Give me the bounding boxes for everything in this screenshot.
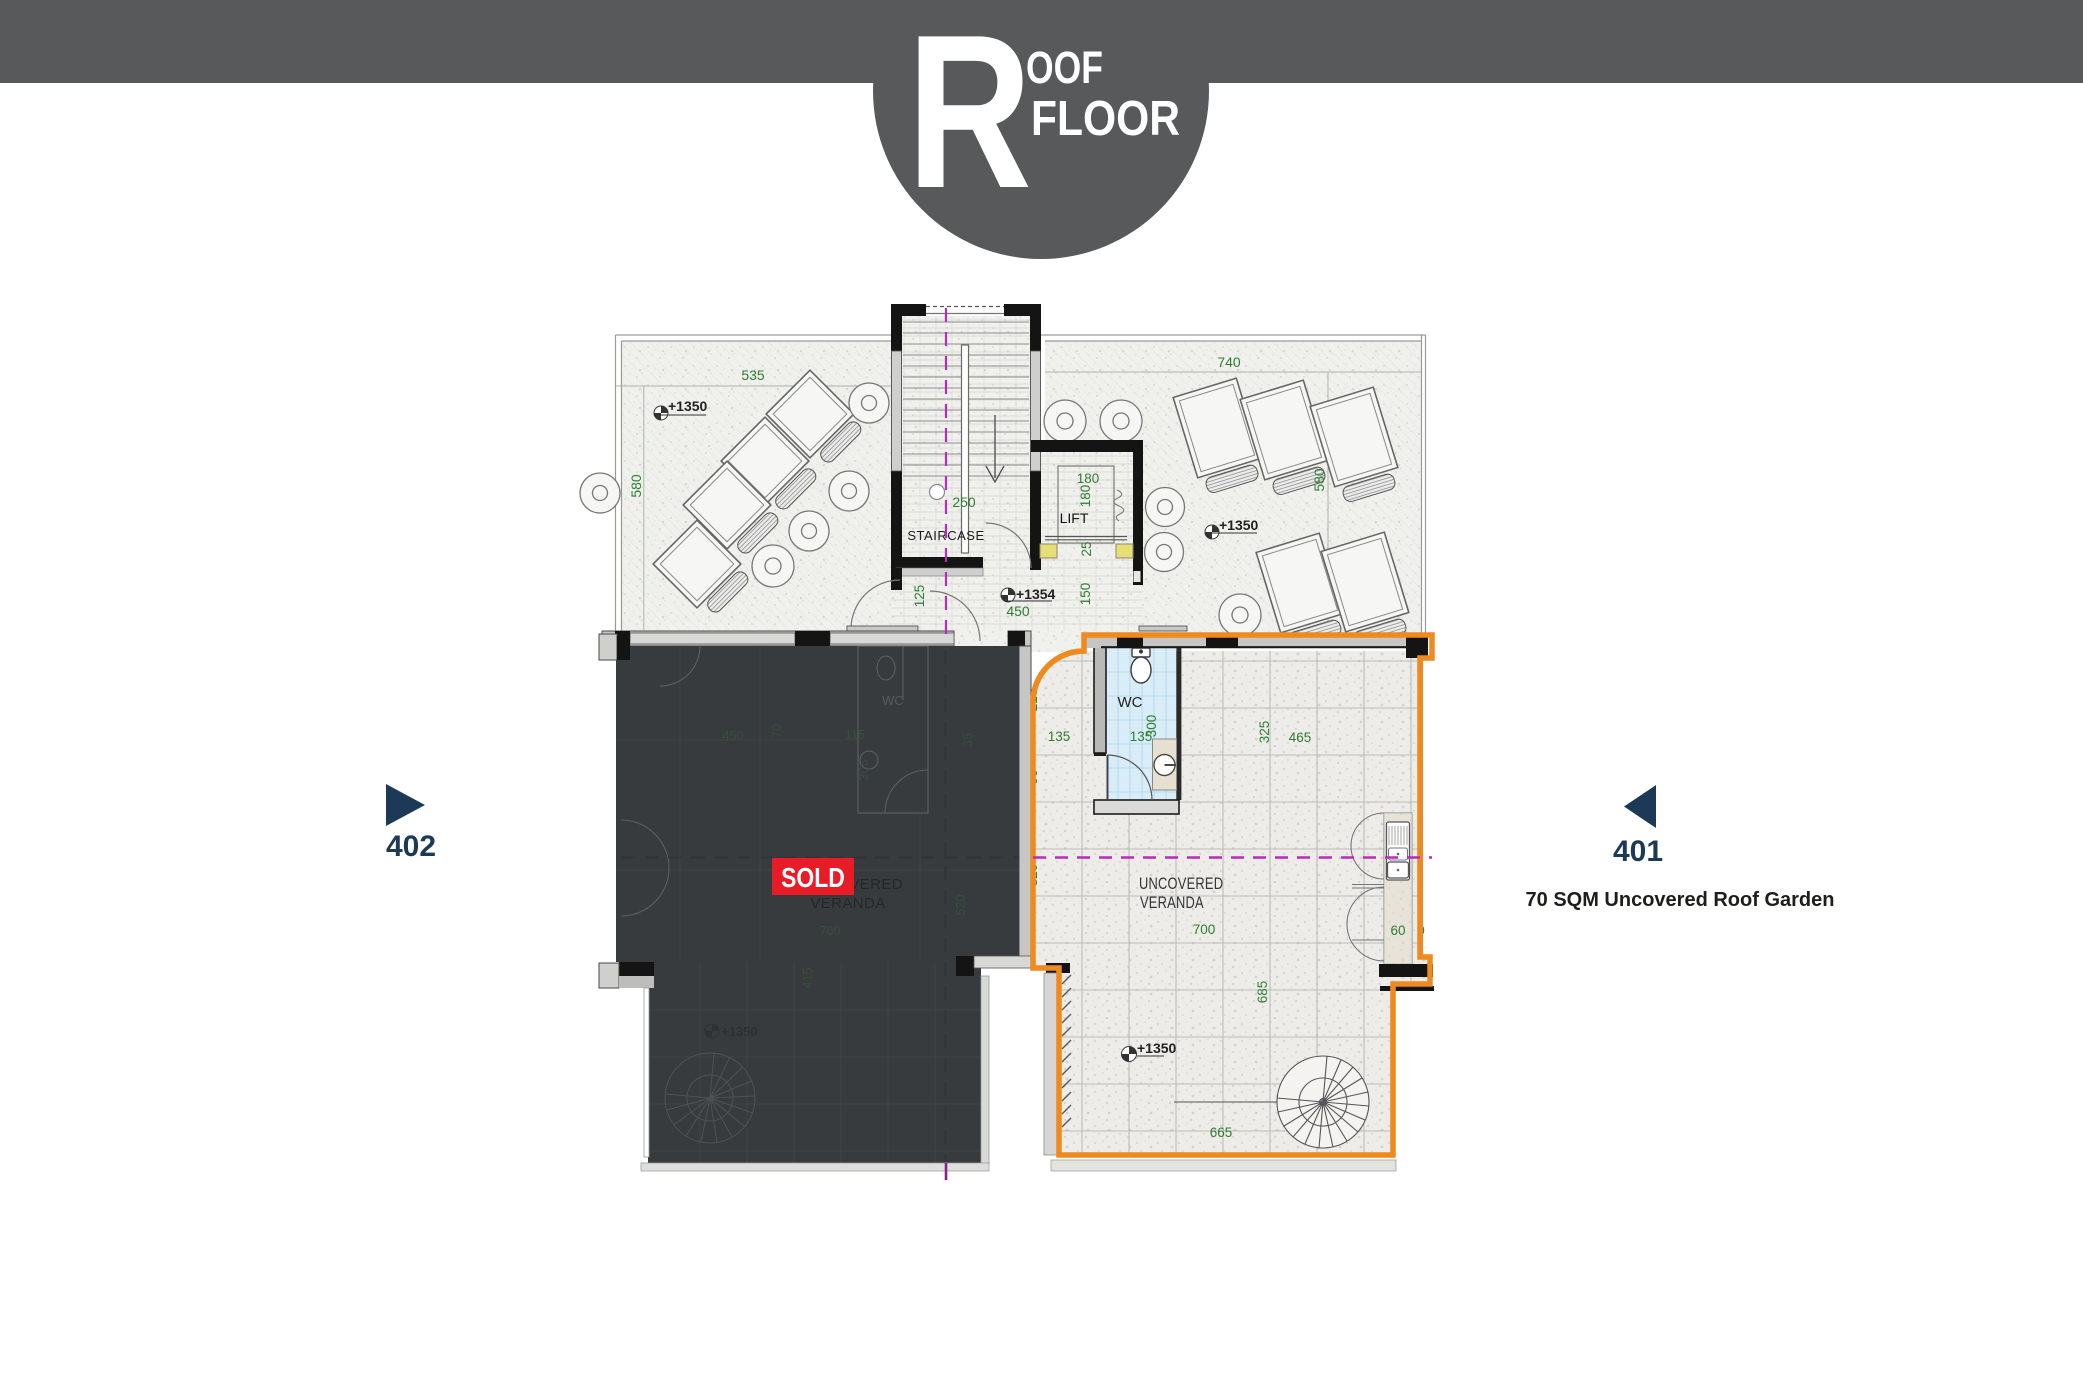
svg-text:535: 535 [741,367,765,383]
svg-text:WC: WC [1118,694,1143,711]
svg-text:665: 665 [1210,1125,1233,1140]
svg-text:VERANDA: VERANDA [810,895,885,912]
svg-text:UNCOVERED: UNCOVERED [1139,876,1223,894]
svg-text:VERANDA: VERANDA [1140,895,1204,913]
svg-text:SOLD: SOLD [781,863,845,894]
svg-text:180: 180 [1077,471,1100,486]
svg-text:465: 465 [1289,730,1312,745]
svg-text:25: 25 [1079,541,1094,556]
svg-text:FLOOR: FLOOR [1031,90,1180,146]
svg-text:740: 740 [1217,354,1241,370]
svg-text:WC: WC [882,693,904,708]
svg-text:401: 401 [1613,835,1663,868]
svg-text:70 SQM Uncovered Roof Garden: 70 SQM Uncovered Roof Garden [1526,889,1835,911]
svg-text:325: 325 [1257,721,1272,744]
svg-text:35: 35 [961,733,975,747]
svg-text:70: 70 [770,724,784,738]
svg-text:115: 115 [845,728,865,742]
svg-text:125: 125 [912,585,927,608]
svg-text:520: 520 [954,895,968,916]
svg-text:+1354: +1354 [1016,586,1056,602]
svg-text:+1350: +1350 [1137,1040,1177,1056]
svg-text:150: 150 [1078,583,1093,606]
svg-text:700: 700 [820,924,841,938]
svg-text:+1350: +1350 [721,1024,758,1039]
svg-text:LIFT: LIFT [1060,510,1089,526]
svg-text:700: 700 [1193,922,1216,937]
svg-text:580: 580 [628,474,644,498]
svg-text:+1350: +1350 [668,398,708,414]
svg-text:580: 580 [1311,468,1327,492]
svg-text:305: 305 [857,760,871,781]
svg-text:415: 415 [801,968,815,989]
svg-text:685: 685 [1255,981,1270,1004]
svg-text:300: 300 [1144,715,1159,738]
svg-text:402: 402 [386,830,436,863]
svg-text:135: 135 [1048,729,1071,744]
svg-text:450: 450 [1006,603,1030,619]
svg-text:250: 250 [952,494,976,510]
svg-text:180: 180 [1078,485,1093,508]
svg-text:R: R [907,0,1032,234]
svg-text:+1350: +1350 [1219,517,1259,533]
svg-text:450: 450 [723,729,744,743]
svg-text:OOF: OOF [1026,42,1103,93]
svg-text:60: 60 [1390,923,1405,938]
